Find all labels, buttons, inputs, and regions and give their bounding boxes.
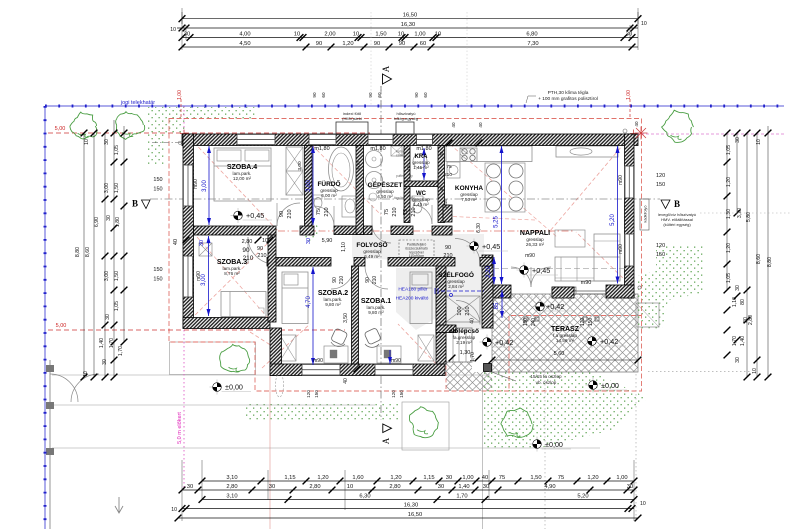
svg-text:4,50 m²: 4,50 m² (377, 194, 393, 199)
svg-text:30: 30 (187, 484, 193, 490)
svg-text:210: 210 (257, 253, 266, 259)
svg-text:30: 30 (483, 484, 489, 490)
svg-text:1,45: 1,45 (443, 199, 449, 209)
svg-text:10: 10 (170, 27, 176, 33)
svg-text:75: 75 (403, 209, 409, 215)
svg-text:75: 75 (446, 164, 452, 170)
svg-text:5,00: 5,00 (56, 323, 67, 329)
svg-text:5,60: 5,60 (554, 351, 565, 357)
svg-text:3,00: 3,00 (104, 183, 110, 193)
svg-text:6,80: 6,80 (526, 31, 537, 37)
svg-text:150: 150 (523, 318, 529, 327)
svg-text:+0,42: +0,42 (495, 338, 513, 347)
svg-text:1,05: 1,05 (726, 145, 732, 155)
svg-text:1,20: 1,20 (390, 475, 401, 481)
svg-text:2,80: 2,80 (309, 484, 320, 490)
svg-text:40: 40 (343, 378, 349, 384)
svg-text:120: 120 (391, 390, 396, 398)
svg-text:90: 90 (312, 92, 317, 98)
svg-text:+ 100 mm grafitos polisztirol: + 100 mm grafitos polisztirol (538, 96, 598, 102)
svg-text:60: 60 (321, 92, 326, 98)
svg-text:90: 90 (414, 92, 419, 98)
svg-text:8,60: 8,60 (756, 254, 762, 264)
svg-text:m1,80: m1,80 (416, 146, 431, 152)
svg-text:210: 210 (465, 306, 471, 315)
svg-text:16,30: 16,30 (401, 22, 416, 28)
svg-text:SZOBA.4: SZOBA.4 (227, 164, 257, 171)
svg-text:6,30: 6,30 (476, 223, 482, 233)
svg-text:120: 120 (306, 390, 311, 398)
svg-text:8,60: 8,60 (85, 247, 91, 257)
svg-text:1,00: 1,00 (414, 31, 425, 37)
svg-text:3,00: 3,00 (104, 271, 110, 281)
svg-text:3,10: 3,10 (226, 475, 237, 481)
svg-text:16,30: 16,30 (404, 502, 419, 508)
svg-text:GÉPÉSZET: GÉPÉSZET (368, 180, 403, 189)
svg-text:1,60: 1,60 (352, 475, 363, 481)
svg-text:1,00: 1,00 (626, 90, 632, 100)
svg-text:210: 210 (392, 207, 398, 216)
svg-text:3,00: 3,00 (202, 180, 208, 192)
svg-text:90: 90 (368, 92, 373, 98)
svg-text:2,19 m²: 2,19 m² (456, 340, 472, 345)
svg-text:10: 10 (84, 139, 90, 145)
svg-text:14,56 m²: 14,56 m² (556, 338, 575, 343)
svg-text:240: 240 (531, 318, 537, 327)
svg-text:1,10: 1,10 (732, 297, 738, 307)
svg-text:12,00 m²: 12,00 m² (233, 176, 252, 181)
svg-text:NAPPALI: NAPPALI (520, 230, 550, 237)
svg-text:1,20: 1,20 (726, 177, 732, 187)
svg-text:HEA180 pillér: HEA180 pillér (398, 287, 428, 293)
svg-text:2,80: 2,80 (748, 315, 754, 325)
svg-text:m1,80: m1,80 (314, 146, 329, 152)
svg-text:SZOBA.1: SZOBA.1 (361, 298, 391, 305)
svg-text:40: 40 (451, 122, 456, 128)
svg-text:45: 45 (439, 151, 444, 157)
svg-text:150: 150 (153, 267, 162, 273)
svg-text:KONYHA: KONYHA (455, 185, 483, 192)
svg-text:B: B (132, 199, 138, 209)
svg-text:m90: m90 (391, 358, 401, 364)
svg-text:1,70: 1,70 (118, 346, 124, 356)
svg-text:210: 210 (444, 172, 452, 178)
svg-text:1,10: 1,10 (341, 242, 347, 252)
svg-text:4,70: 4,70 (306, 296, 312, 308)
svg-text:5,80: 5,80 (746, 212, 752, 222)
svg-text:1,30: 1,30 (460, 350, 471, 356)
svg-text:vb. oszlop: vb. oszlop (536, 380, 557, 385)
svg-text:2,80: 2,80 (389, 484, 400, 490)
svg-text:FÜRDŐ: FÜRDŐ (317, 179, 340, 188)
svg-text:4,90: 4,90 (544, 484, 555, 490)
svg-text:4,50: 4,50 (239, 41, 250, 47)
svg-text:40: 40 (173, 239, 179, 245)
svg-text:90: 90 (445, 245, 451, 251)
svg-text:SZOBA.2: SZOBA.2 (318, 290, 348, 297)
svg-text:1,05: 1,05 (114, 145, 120, 155)
svg-text:1,40: 1,40 (740, 336, 746, 346)
svg-text:1,70: 1,70 (732, 336, 738, 346)
svg-text:210: 210 (243, 255, 254, 262)
svg-text:9,80 m²: 9,80 m² (325, 302, 341, 307)
svg-text:+0,45: +0,45 (532, 266, 550, 275)
svg-text:30: 30 (269, 484, 275, 490)
svg-text:10: 10 (641, 21, 647, 27)
svg-text:45: 45 (439, 186, 444, 192)
svg-text:±0,00: ±0,00 (601, 381, 619, 390)
svg-text:90: 90 (242, 247, 250, 254)
svg-text:+0,45: +0,45 (246, 211, 264, 220)
svg-text:210: 210 (287, 209, 293, 218)
svg-text:210: 210 (339, 276, 345, 285)
svg-text:5,0 m előkert: 5,0 m előkert (177, 412, 183, 444)
svg-text:m90: m90 (313, 358, 323, 364)
svg-text:2,20: 2,20 (486, 266, 492, 278)
svg-text:FOLYOSÓ: FOLYOSÓ (356, 240, 387, 249)
svg-text:150: 150 (656, 252, 665, 258)
svg-text:+0,42: +0,42 (600, 337, 618, 346)
svg-text:30: 30 (735, 137, 741, 143)
svg-text:3,00: 3,00 (306, 180, 312, 192)
svg-text:10: 10 (435, 31, 441, 37)
svg-text:1,15: 1,15 (423, 475, 434, 481)
svg-text:90: 90 (399, 41, 405, 47)
svg-text:5,00: 5,00 (55, 126, 66, 132)
svg-text:m90: m90 (193, 179, 199, 189)
svg-text:A: A (381, 437, 391, 444)
svg-text:15/15 fa oszlop: 15/15 fa oszlop (530, 374, 562, 379)
svg-text:1,15: 1,15 (284, 475, 295, 481)
svg-text:1,45 m²: 1,45 m² (413, 202, 429, 207)
svg-text:90: 90 (316, 41, 322, 47)
svg-text:7,30: 7,30 (527, 41, 538, 47)
svg-text:1,80: 1,80 (115, 217, 121, 227)
svg-text:10: 10 (640, 501, 646, 507)
svg-text:+0,45: +0,45 (482, 242, 500, 251)
svg-text:m1,80: m1,80 (370, 146, 385, 152)
svg-text:10: 10 (752, 368, 758, 374)
svg-text:1,50: 1,50 (530, 475, 541, 481)
svg-text:előlépcső: előlépcső (449, 328, 479, 335)
svg-text:100: 100 (457, 306, 463, 315)
svg-text:10: 10 (347, 484, 353, 490)
svg-text:30: 30 (105, 314, 111, 320)
svg-text:30: 30 (735, 357, 741, 363)
svg-text:120: 120 (580, 318, 586, 327)
svg-text:1,50: 1,50 (114, 271, 120, 281)
svg-text:8,76 m²: 8,76 m² (224, 271, 240, 276)
svg-text:1,20: 1,20 (726, 243, 732, 253)
svg-text:1,30: 1,30 (726, 209, 732, 219)
svg-text:1,50: 1,50 (375, 31, 386, 37)
svg-text:2,80: 2,80 (226, 484, 237, 490)
svg-text:1,20: 1,20 (317, 475, 328, 481)
svg-text:9,80 m²: 9,80 m² (368, 310, 384, 315)
svg-text:75: 75 (499, 475, 505, 481)
svg-text:HEA200 kiváltó: HEA200 kiváltó (396, 296, 429, 302)
svg-text:5,90: 5,90 (322, 238, 333, 244)
svg-text:8,80: 8,80 (767, 257, 773, 267)
svg-text:8,80: 8,80 (75, 247, 81, 257)
svg-text:150: 150 (314, 390, 319, 398)
svg-text:75: 75 (558, 475, 564, 481)
svg-text:90: 90 (374, 41, 380, 47)
svg-text:1,05: 1,05 (726, 273, 732, 283)
svg-text:2,84 m²: 2,84 m² (448, 284, 464, 289)
svg-text:1,00: 1,00 (616, 475, 627, 481)
svg-text:60: 60 (423, 92, 428, 98)
svg-text:26,33 m²: 26,33 m² (526, 242, 545, 247)
svg-text:5,25: 5,25 (494, 216, 500, 228)
svg-text:1,70: 1,70 (456, 493, 467, 499)
svg-text:SZÉLFOGÓ: SZÉLFOGÓ (438, 270, 474, 279)
svg-text:210: 210 (372, 276, 378, 285)
svg-text:210: 210 (443, 253, 452, 259)
svg-text:kádkifolyó: kádkifolyó (644, 206, 648, 223)
svg-text:150: 150 (153, 187, 162, 193)
svg-text:3,10: 3,10 (226, 493, 237, 499)
svg-text:10: 10 (398, 31, 404, 37)
svg-text:m90: m90 (525, 253, 535, 259)
svg-text:5,20: 5,20 (577, 493, 588, 499)
svg-text:40: 40 (634, 121, 639, 127)
svg-text:TERASZ: TERASZ (551, 326, 580, 333)
svg-text:3,00: 3,00 (356, 161, 362, 171)
svg-text:30: 30 (306, 238, 312, 244)
svg-text:90: 90 (279, 211, 285, 217)
svg-text:hőlég-egység: hőlég-egység (394, 116, 418, 121)
svg-text:80: 80 (740, 299, 746, 305)
svg-text:±0,00: ±0,00 (225, 383, 243, 392)
svg-text:m90: m90 (581, 280, 592, 286)
svg-text:1,45 m²: 1,45 m² (413, 165, 429, 170)
svg-text:6,30: 6,30 (359, 493, 370, 499)
svg-text:75: 75 (384, 209, 390, 215)
svg-text:150: 150 (588, 318, 594, 327)
svg-text:16,50: 16,50 (408, 512, 423, 518)
svg-text:10: 10 (406, 165, 411, 171)
svg-text:7,50 m²: 7,50 m² (461, 197, 477, 202)
svg-text:40: 40 (482, 475, 488, 481)
svg-text:210: 210 (324, 207, 330, 216)
svg-text:30: 30 (102, 359, 108, 365)
svg-text:150: 150 (656, 182, 665, 188)
svg-text:m90: m90 (618, 244, 624, 254)
svg-text:30: 30 (106, 215, 112, 221)
svg-text:210: 210 (411, 207, 417, 216)
svg-text:+0,42: +0,42 (546, 302, 564, 311)
svg-text:1,05: 1,05 (114, 301, 120, 311)
svg-text:30: 30 (184, 31, 190, 37)
svg-text:10: 10 (756, 139, 762, 145)
svg-text:1,00: 1,00 (177, 90, 183, 100)
svg-text:4,00: 4,00 (239, 31, 250, 37)
svg-text:jogi telekhatár: jogi telekhatár (120, 100, 155, 106)
svg-text:6,90: 6,90 (94, 217, 100, 227)
svg-text:PTH,30 klíma tégla: PTH,30 klíma tégla (548, 90, 589, 96)
svg-text:1,00: 1,00 (462, 475, 473, 481)
svg-text:m90: m90 (618, 175, 624, 185)
svg-text:3,00: 3,00 (297, 161, 303, 171)
svg-text:30: 30 (438, 484, 444, 490)
svg-text:16,50: 16,50 (403, 13, 418, 19)
svg-text:1,20: 1,20 (342, 41, 353, 47)
svg-text:30: 30 (104, 139, 110, 145)
svg-text:30: 30 (735, 285, 741, 291)
svg-text:90: 90 (365, 277, 371, 283)
svg-text:85: 85 (494, 302, 500, 309)
svg-text:1,40: 1,40 (99, 338, 105, 348)
svg-text:30: 30 (446, 475, 452, 481)
svg-text:30: 30 (627, 484, 633, 490)
svg-text:2,80: 2,80 (242, 239, 253, 245)
svg-text:1,20: 1,20 (587, 475, 598, 481)
svg-text:6,00 m²: 6,00 m² (321, 193, 337, 198)
svg-text:A: A (381, 65, 391, 72)
svg-text:±0,00: ±0,00 (545, 440, 563, 449)
svg-text:2,00: 2,00 (324, 31, 335, 37)
svg-text:60: 60 (420, 41, 426, 47)
svg-text:6,49 m²: 6,49 m² (364, 254, 380, 259)
svg-text:3,50: 3,50 (343, 313, 349, 323)
svg-text:150: 150 (153, 177, 162, 183)
svg-text:120: 120 (656, 243, 665, 249)
svg-text:75: 75 (316, 209, 322, 215)
svg-text:10: 10 (294, 31, 300, 37)
svg-text:90: 90 (332, 277, 338, 283)
svg-text:1,70: 1,70 (109, 338, 115, 348)
svg-text:40: 40 (478, 122, 483, 128)
svg-text:B: B (674, 199, 680, 209)
svg-text:90: 90 (257, 246, 263, 252)
svg-text:150: 150 (399, 390, 404, 398)
svg-text:1,50: 1,50 (114, 183, 120, 193)
svg-text:(kültéri egység): (kültéri egység) (663, 222, 691, 227)
svg-text:10: 10 (171, 507, 177, 513)
svg-text:40: 40 (470, 318, 476, 324)
svg-text:120: 120 (656, 173, 665, 179)
svg-text:5,20: 5,20 (610, 214, 616, 226)
svg-text:150: 150 (153, 277, 162, 283)
svg-text:m90: m90 (196, 271, 202, 281)
svg-text:10: 10 (353, 31, 359, 37)
svg-text:30: 30 (626, 31, 632, 37)
svg-text:(HMV)siebi: (HMV)siebi (342, 116, 362, 121)
svg-text:10: 10 (83, 371, 89, 377)
svg-text:30: 30 (199, 240, 205, 246)
svg-text:1,40: 1,40 (458, 484, 469, 490)
